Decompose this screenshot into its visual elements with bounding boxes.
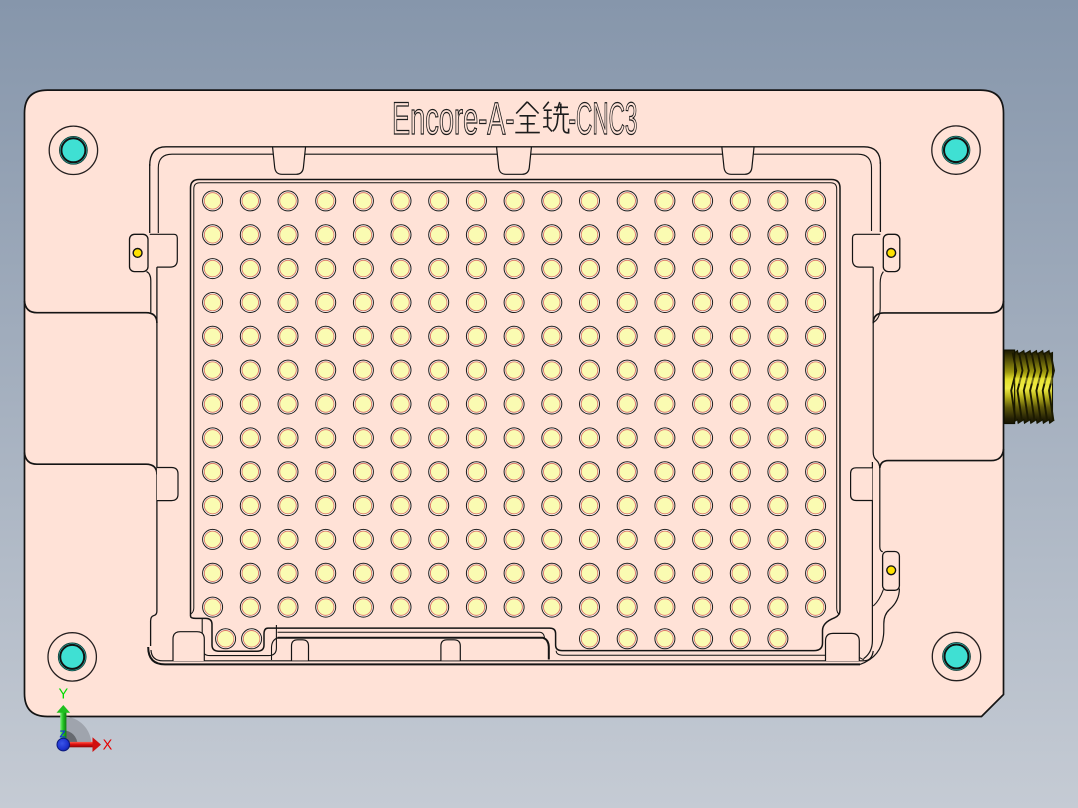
svg-text:-CNC3: -CNC3 (569, 93, 638, 144)
svg-text:X: X (103, 738, 113, 754)
svg-text:Encore-A-: Encore-A- (392, 93, 515, 144)
svg-text:Y: Y (58, 687, 68, 703)
